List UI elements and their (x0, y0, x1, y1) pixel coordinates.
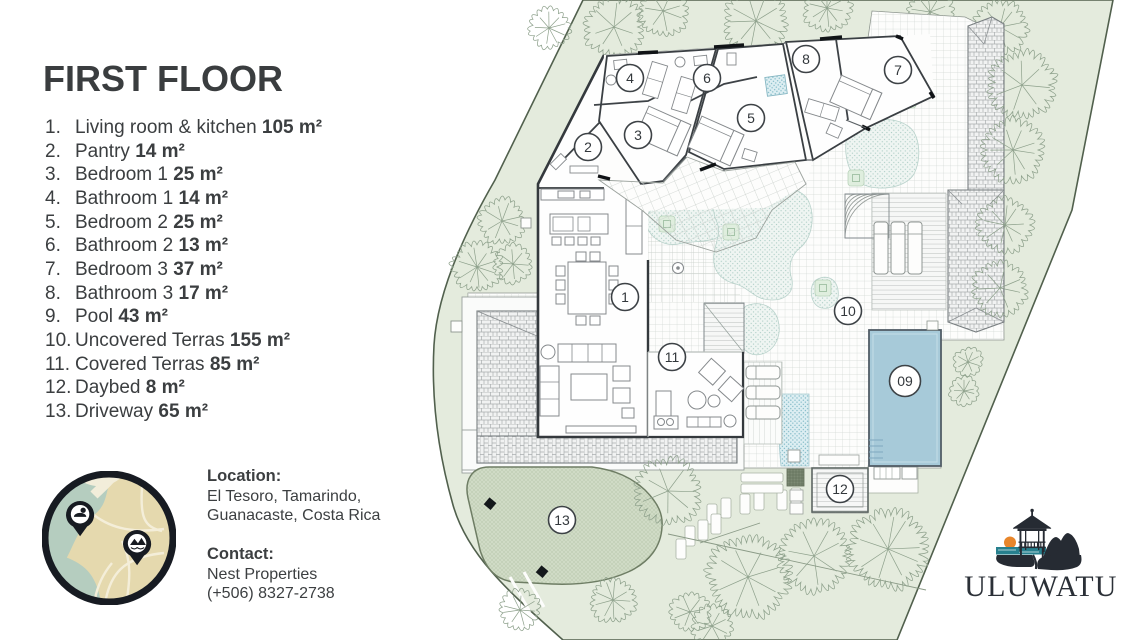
svg-text:2: 2 (584, 139, 592, 155)
svg-text:3: 3 (634, 127, 642, 143)
svg-text:8: 8 (802, 51, 810, 67)
svg-text:1: 1 (621, 289, 629, 305)
svg-text:12: 12 (832, 481, 848, 497)
svg-text:09: 09 (897, 373, 913, 389)
svg-text:4: 4 (626, 70, 634, 86)
svg-text:5: 5 (747, 110, 755, 126)
svg-text:7: 7 (894, 62, 902, 78)
svg-text:11: 11 (665, 349, 680, 365)
svg-text:13: 13 (554, 512, 570, 528)
svg-text:10: 10 (840, 303, 856, 319)
svg-text:6: 6 (703, 70, 711, 86)
